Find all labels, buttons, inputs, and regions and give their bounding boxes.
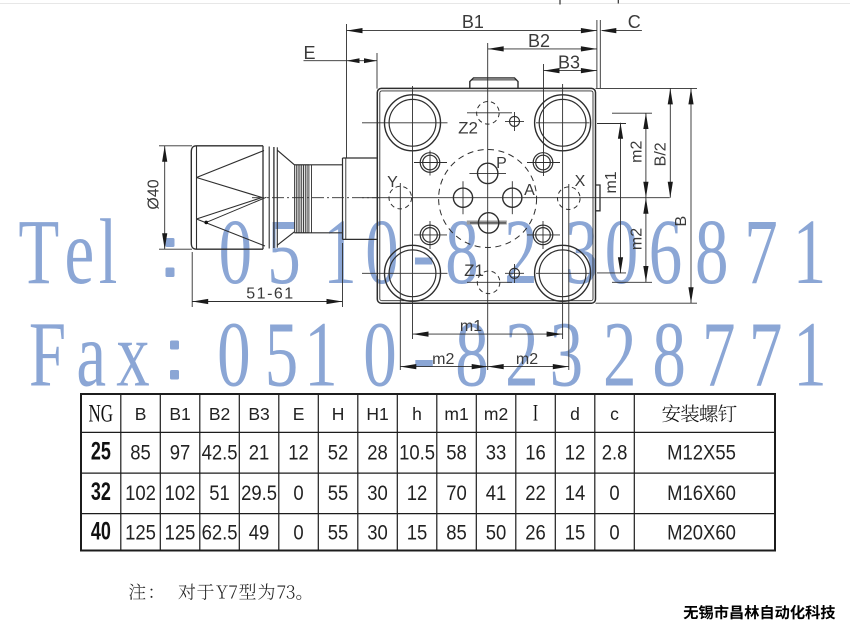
svg-text:a: a [76,303,106,406]
svg-text:m2: m2 [629,228,646,250]
svg-text:Y: Y [387,174,398,191]
svg-text:A: A [524,182,535,199]
svg-text:C: C [628,12,641,32]
svg-text:Z1: Z1 [464,261,484,280]
svg-text:B3: B3 [558,53,580,73]
svg-text:8: 8 [445,200,478,303]
svg-text:12: 12 [565,441,586,464]
svg-text:Ø40: Ø40 [146,179,163,209]
svg-text:5: 5 [265,303,298,406]
svg-text:15: 15 [565,521,586,544]
svg-text:41: 41 [486,482,507,505]
svg-text:125: 125 [125,521,156,544]
svg-text:0: 0 [293,482,303,505]
svg-text:Z2: Z2 [458,119,478,138]
svg-text:B/2: B/2 [653,142,670,166]
svg-text:21: 21 [249,441,270,464]
svg-text:X: X [575,173,586,190]
svg-text:B2: B2 [528,31,550,51]
svg-text:2.8: 2.8 [602,441,628,464]
svg-text:e: e [65,200,95,303]
svg-text:28: 28 [367,441,388,464]
svg-text:52: 52 [328,441,349,464]
svg-text:NG: NG [89,399,114,427]
svg-text:B: B [135,404,147,424]
svg-text:0: 0 [363,303,396,406]
svg-text:l: l [99,200,118,303]
svg-text:0: 0 [293,521,303,544]
svg-text:F: F [29,303,66,406]
svg-text:3: 3 [550,303,583,406]
svg-text:E: E [293,404,305,424]
svg-text:33: 33 [486,441,507,464]
svg-text:70: 70 [446,482,467,505]
svg-text:85: 85 [130,441,151,464]
svg-text:10.5: 10.5 [399,441,435,464]
svg-text:E: E [303,43,315,63]
svg-text:29.5: 29.5 [241,482,277,505]
svg-text:P: P [496,155,507,172]
svg-text:M20X60: M20X60 [667,521,736,544]
svg-text:0: 0 [605,200,638,303]
svg-text:1: 1 [793,303,826,406]
svg-text:16: 16 [525,441,546,464]
svg-text:97: 97 [170,441,191,464]
svg-text:102: 102 [165,482,196,505]
svg-text:1: 1 [304,303,337,406]
svg-text:15: 15 [407,521,428,544]
svg-text:51: 51 [209,482,230,505]
svg-text:d: d [570,404,580,424]
svg-text:40: 40 [91,517,111,546]
svg-text:55: 55 [328,482,349,505]
svg-text:m2: m2 [516,351,538,368]
svg-text:c: c [610,404,619,424]
svg-text:30: 30 [367,482,388,505]
svg-text:42.5: 42.5 [202,441,238,464]
svg-text:B2: B2 [209,404,230,424]
svg-text:B1: B1 [169,404,190,424]
svg-text:H1: H1 [366,404,388,424]
svg-text:85: 85 [446,521,467,544]
svg-text:50: 50 [486,521,507,544]
svg-text:I: I [533,401,538,427]
svg-text:2: 2 [603,303,636,406]
svg-text:m1: m1 [444,404,468,424]
svg-text:12: 12 [407,482,428,505]
svg-text:m2: m2 [484,404,508,424]
svg-text:12: 12 [288,441,309,464]
svg-text:25: 25 [91,437,111,466]
svg-text:8: 8 [652,303,685,406]
svg-text:B3: B3 [248,404,269,424]
svg-text:26: 26 [525,521,546,544]
svg-text:B: B [673,216,690,227]
svg-text:49: 49 [249,521,270,544]
svg-text:1: 1 [323,200,356,303]
svg-text:30: 30 [367,521,388,544]
svg-text:x: x [116,303,149,406]
svg-text:0: 0 [609,482,619,505]
svg-text:m2: m2 [629,140,646,162]
svg-text:58: 58 [446,441,467,464]
svg-text:m2: m2 [432,351,454,368]
svg-text:32: 32 [91,477,111,506]
svg-text:22: 22 [525,482,546,505]
svg-text:0: 0 [217,303,250,406]
svg-text:M12X55: M12X55 [667,441,736,464]
svg-text:0: 0 [609,521,619,544]
svg-text:2: 2 [504,200,537,303]
svg-text:8: 8 [695,200,728,303]
svg-text:55: 55 [328,521,349,544]
svg-text:B1: B1 [462,12,484,32]
svg-text:M16X60: M16X60 [667,482,736,505]
svg-text:1: 1 [793,200,826,303]
svg-text:h: h [412,404,422,424]
svg-text:62.5: 62.5 [202,521,238,544]
svg-text:102: 102 [125,482,156,505]
svg-text:T: T [18,200,59,303]
svg-text:125: 125 [165,521,196,544]
svg-text:51-61: 51-61 [246,285,294,302]
svg-text:7: 7 [744,200,777,303]
svg-text:H: H [332,404,345,424]
svg-text:m1: m1 [603,171,620,193]
svg-text:7: 7 [702,303,735,406]
svg-text:7: 7 [749,303,782,406]
svg-text:m1: m1 [460,318,482,335]
svg-text:14: 14 [565,482,586,505]
